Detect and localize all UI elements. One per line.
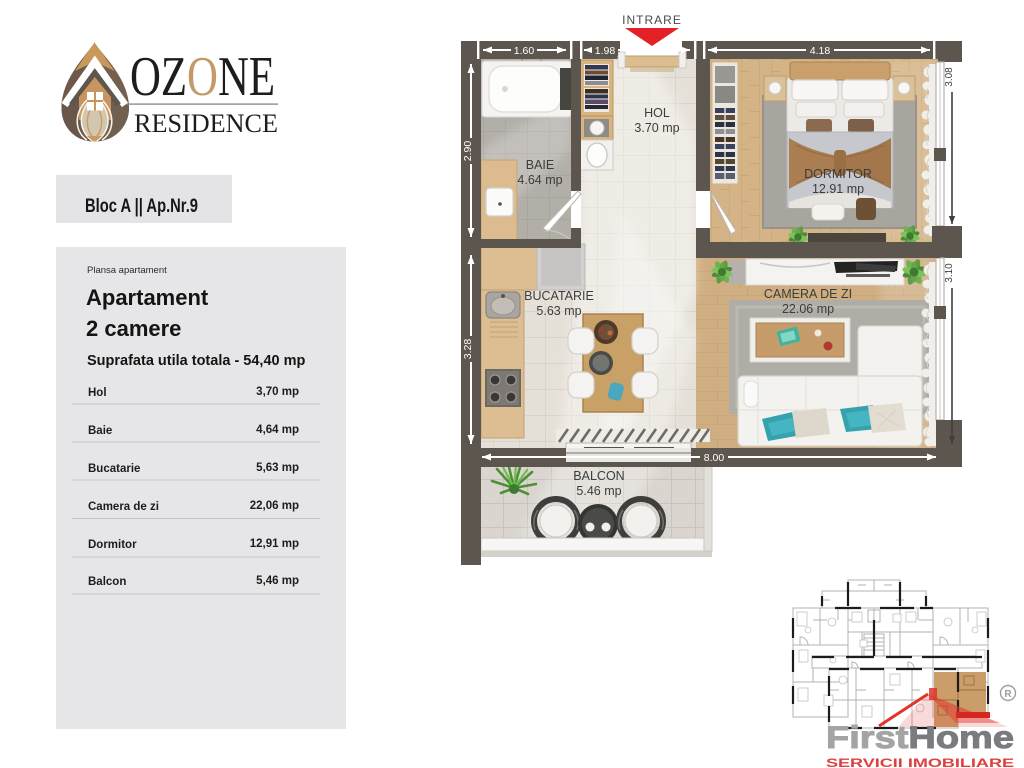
- svg-text:4.64 mp: 4.64 mp: [517, 173, 562, 187]
- svg-text:1.60: 1.60: [514, 45, 535, 57]
- svg-text:HOL: HOL: [644, 106, 670, 120]
- svg-text:5,63 mp: 5,63 mp: [256, 462, 299, 474]
- svg-text:5.63 mp: 5.63 mp: [536, 304, 581, 318]
- svg-text:3,70 mp: 3,70 mp: [256, 386, 299, 398]
- svg-text:CAMERA DE ZI: CAMERA DE ZI: [764, 287, 852, 301]
- svg-text:4,64 mp: 4,64 mp: [256, 424, 299, 436]
- svg-text:BAIE: BAIE: [526, 158, 555, 172]
- svg-text:22.06 mp: 22.06 mp: [782, 302, 834, 316]
- svg-text:Plansa apartament: Plansa apartament: [87, 265, 167, 276]
- svg-text:R: R: [1004, 689, 1012, 700]
- svg-text:3.08: 3.08: [944, 67, 955, 87]
- svg-text:BALCON: BALCON: [573, 469, 624, 483]
- svg-text:3.70 mp: 3.70 mp: [634, 121, 679, 135]
- svg-text:8.00: 8.00: [704, 452, 725, 464]
- svg-text:22,06 mp: 22,06 mp: [250, 500, 299, 512]
- svg-text:Dormitor: Dormitor: [88, 539, 137, 551]
- svg-text:FirstHome: FirstHome: [826, 719, 1014, 755]
- svg-text:Balcon: Balcon: [88, 576, 126, 588]
- svg-text:Suprafata utila totala - 54,: Suprafata utila totala - 54,40 mp: [87, 353, 306, 369]
- svg-text:12,91 mp: 12,91 mp: [250, 538, 299, 550]
- svg-text:2 camere: 2 camere: [86, 316, 181, 341]
- svg-text:Bucatarie: Bucatarie: [88, 463, 140, 475]
- svg-text:12.91 mp: 12.91 mp: [812, 182, 864, 196]
- svg-text:OZONE: OZONE: [130, 46, 275, 108]
- svg-text:3.28: 3.28: [462, 339, 474, 360]
- svg-text:DORMITOR: DORMITOR: [804, 167, 872, 181]
- svg-text:Bloc A || Ap.Nr.9: Bloc A || Ap.Nr.9: [85, 196, 198, 217]
- svg-text:5.46 mp: 5.46 mp: [576, 484, 621, 498]
- svg-text:Baie: Baie: [88, 425, 112, 437]
- svg-text:1.98: 1.98: [595, 45, 616, 57]
- svg-text:RESIDENCE: RESIDENCE: [134, 108, 278, 138]
- svg-text:Apartament: Apartament: [86, 285, 209, 310]
- svg-text:2.90: 2.90: [462, 141, 474, 162]
- svg-text:BUCATARIE: BUCATARIE: [524, 289, 594, 303]
- svg-text:Hol: Hol: [88, 387, 107, 399]
- svg-text:3.10: 3.10: [944, 263, 955, 283]
- svg-text:4.18: 4.18: [810, 45, 831, 57]
- svg-text:SERVICII IMOBILIARE: SERVICII IMOBILIARE: [826, 758, 1015, 768]
- svg-text:Camera de zi: Camera de zi: [88, 501, 159, 513]
- svg-text:5,46 mp: 5,46 mp: [256, 575, 299, 587]
- svg-text:INTRARE: INTRARE: [622, 13, 682, 27]
